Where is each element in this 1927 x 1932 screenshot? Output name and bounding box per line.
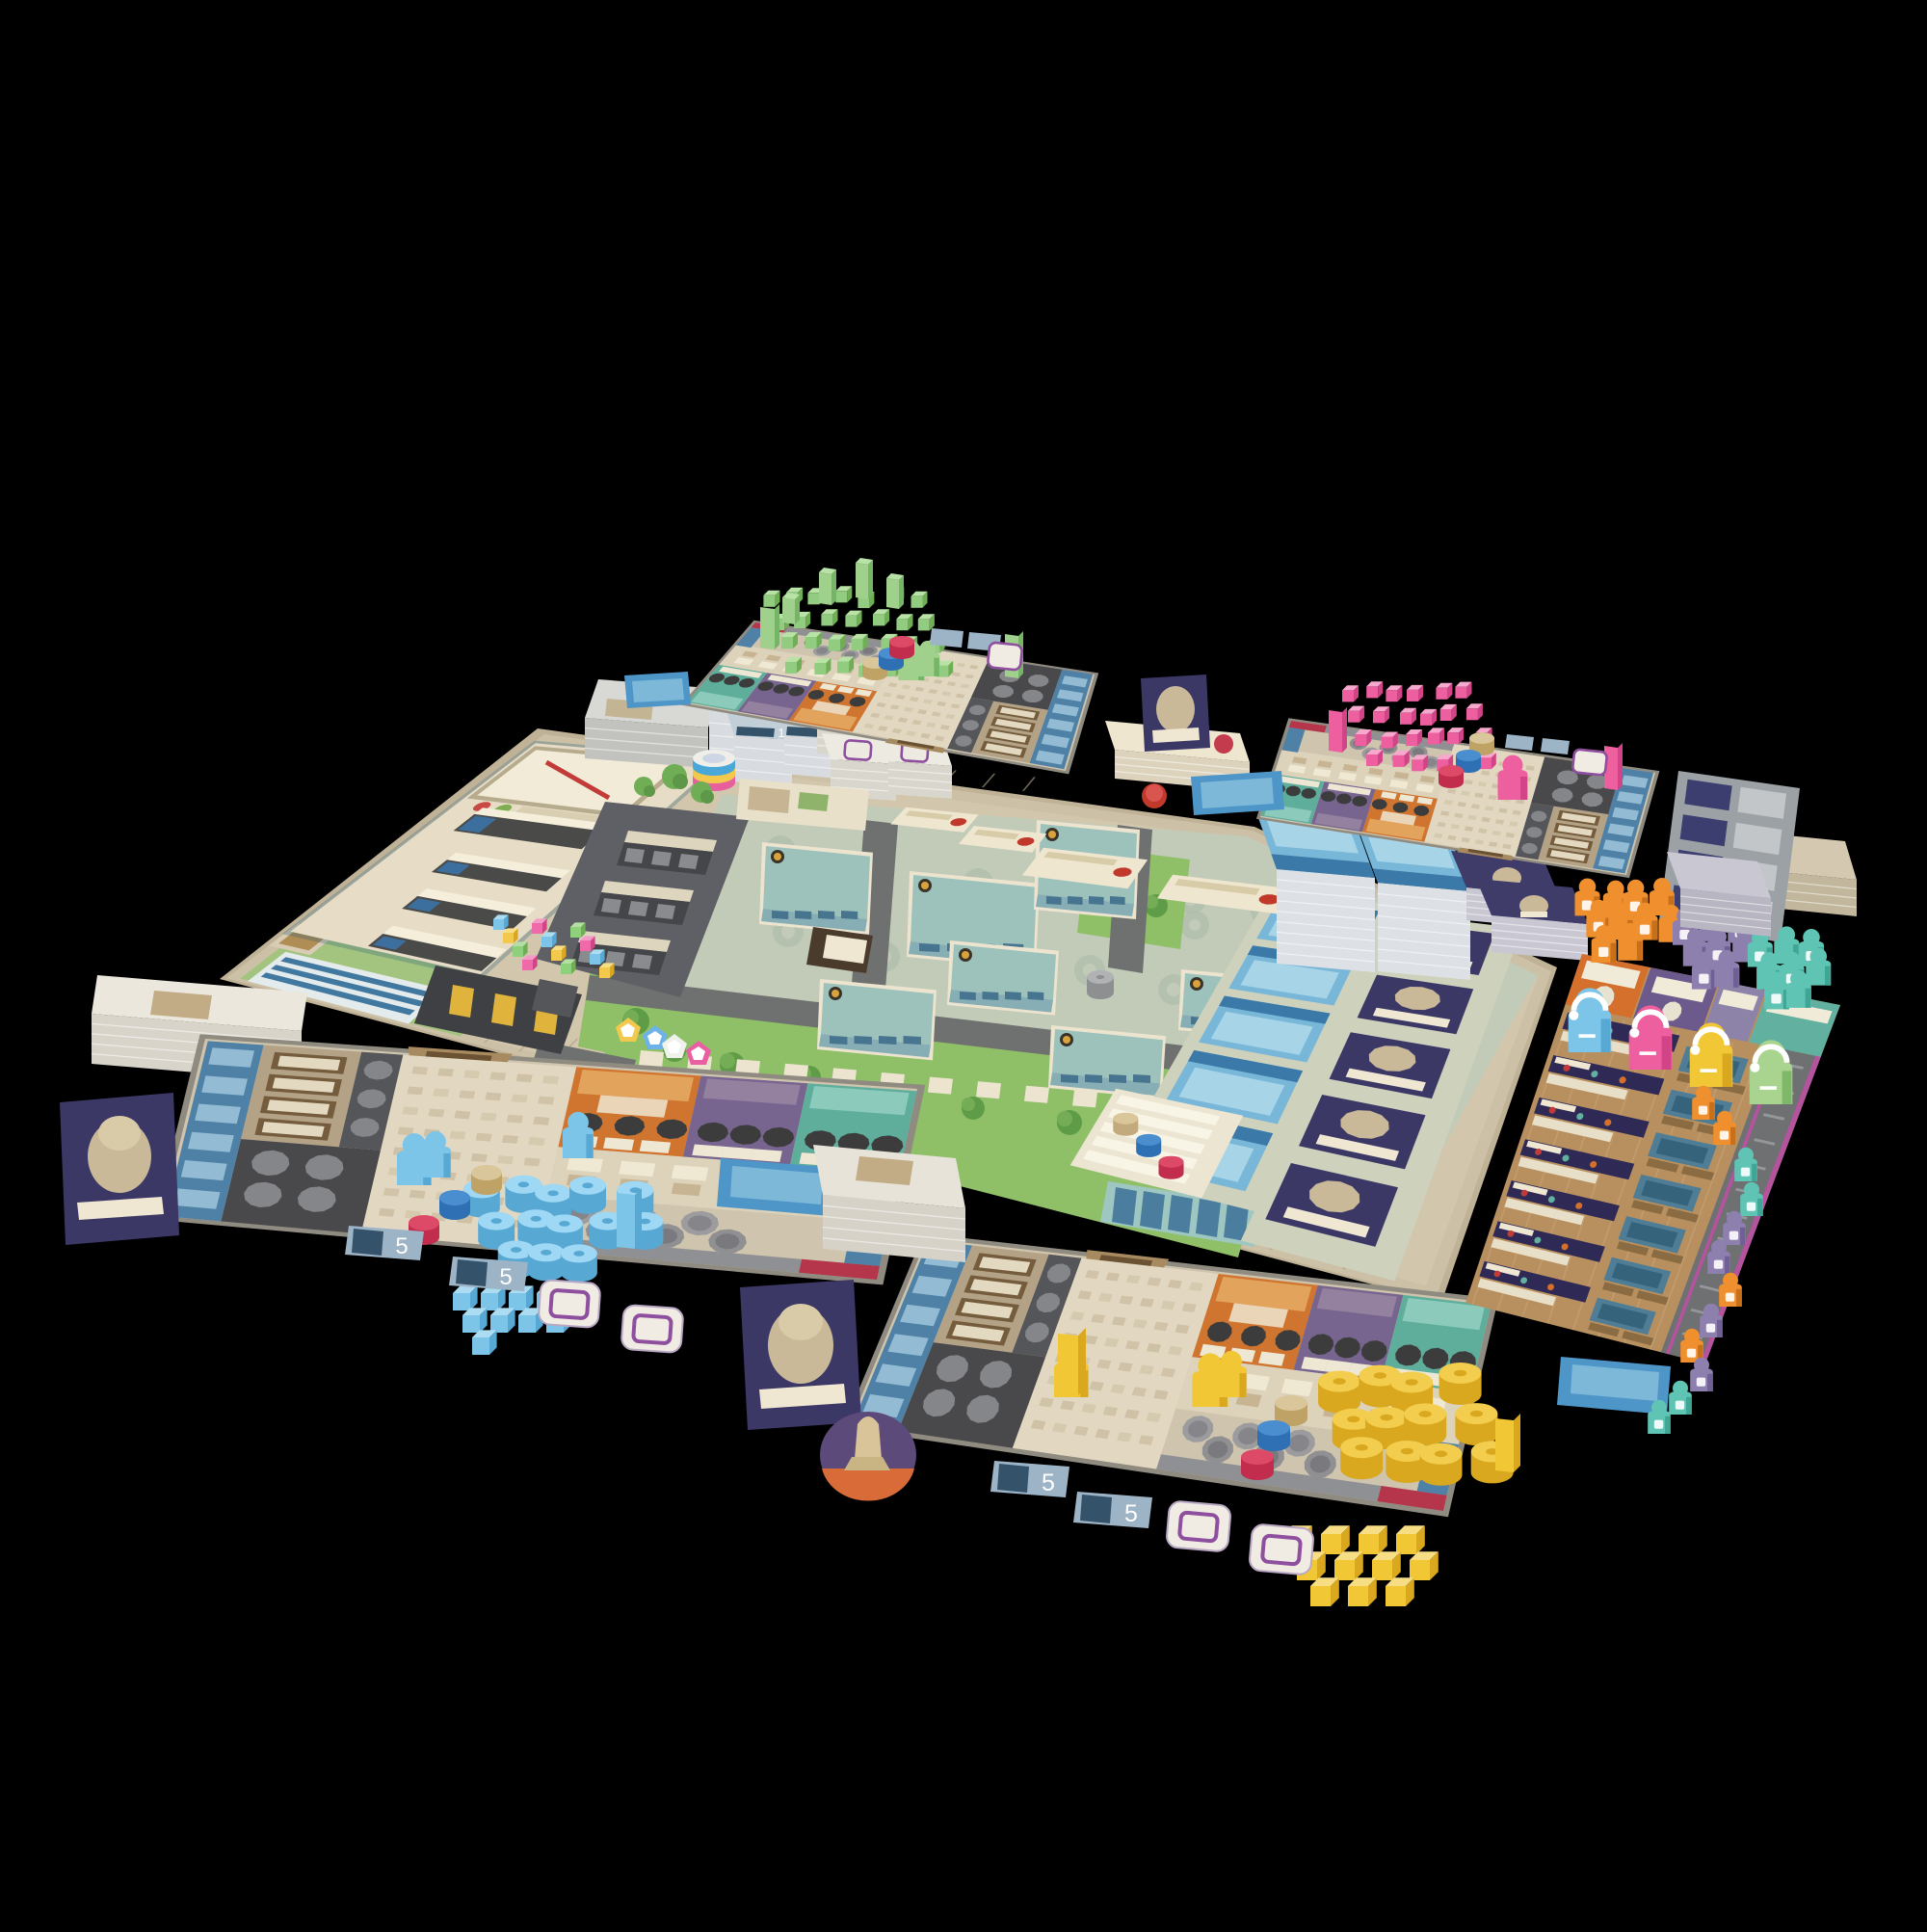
svg-text:5: 5: [395, 1233, 408, 1259]
svg-text:5: 5: [1042, 1469, 1055, 1496]
svg-text:5: 5: [499, 1264, 512, 1290]
svg-text:5: 5: [1124, 1500, 1138, 1527]
